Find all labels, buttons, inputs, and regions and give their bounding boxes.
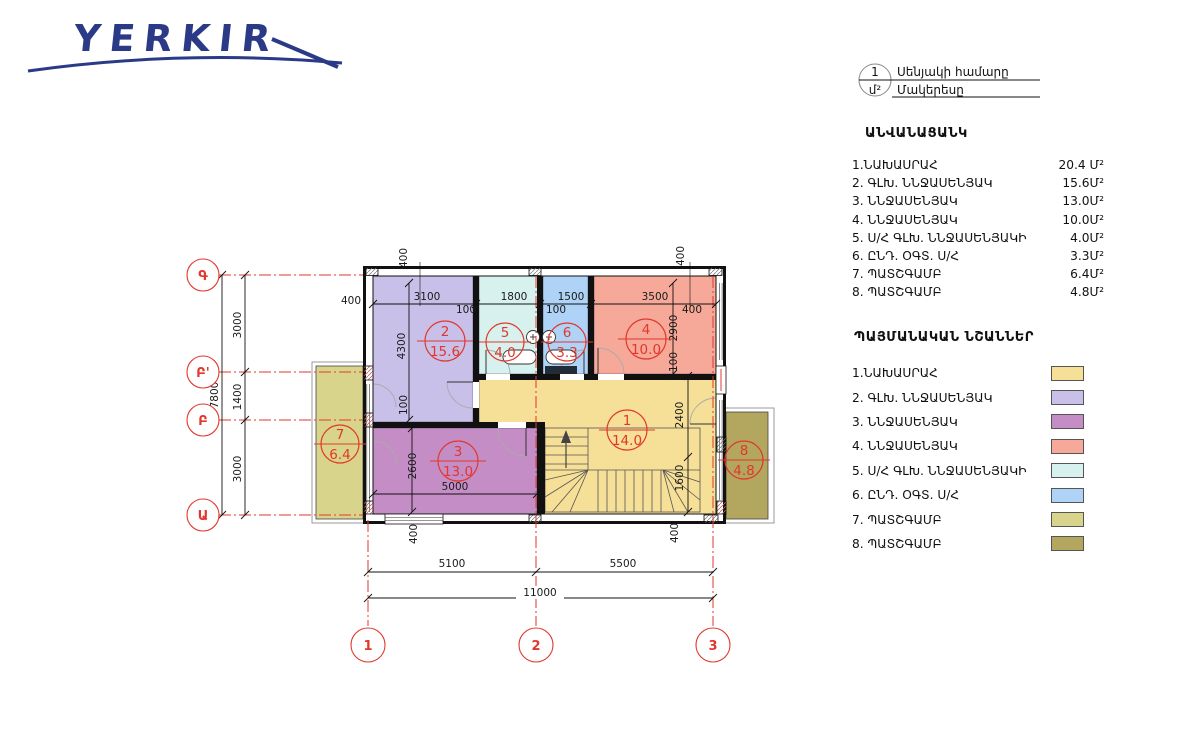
- legend-label: 5. Ս/Հ ԳԼԽ. ՆՆՋԱՍԵՆՅԱԿԻ: [852, 464, 1027, 478]
- room-label: 6. ԸՆԴ. ՕԳՏ. Ս/Հ: [852, 247, 959, 265]
- dim-label: 1800: [501, 291, 528, 303]
- legend-swatch: [1051, 463, 1084, 478]
- room-label: 8. ՊԱՏՇԳԱՄԲ: [852, 283, 942, 301]
- room-area-value: 4.0: [494, 345, 515, 361]
- dim-label: 11000: [523, 587, 556, 599]
- room-number: 5: [501, 325, 510, 341]
- legend-item: 6. ԸՆԴ. ՕԳՏ. Ս/Հ: [852, 483, 1084, 507]
- dim-label: 400: [341, 295, 361, 307]
- dim-label: 5000: [442, 481, 469, 493]
- room-list-item: 6. ԸՆԴ. ՕԳՏ. Ս/Հ 3.3Մ²: [852, 247, 1104, 265]
- legend-item: 7. ՊԱՏՇԳԱՄԲ: [852, 507, 1084, 531]
- legend-swatch: [1051, 439, 1084, 454]
- grid-col-label: 1: [363, 639, 372, 654]
- legend-item: 8. ՊԱՏՇԳԱՄԲ: [852, 532, 1084, 556]
- dim-label: 3500: [642, 291, 669, 303]
- room-label: 7. ՊԱՏՇԳԱՄԲ: [852, 265, 942, 283]
- key-row1-label: Սենյակի համարը: [897, 65, 1009, 79]
- dim-label: 3100: [414, 291, 441, 303]
- dim-label: 3000: [232, 312, 244, 339]
- dim-label: 1400: [232, 384, 244, 411]
- legend-item: 1.ՆԱԽԱՍՐԱՀ: [852, 361, 1084, 385]
- logo-r-leg: [272, 39, 338, 67]
- room-area-value: 10.0: [631, 342, 661, 358]
- room-area-value: 14.0: [612, 433, 642, 449]
- room-label: 4. ՆՆՋԱՍԵՆՅԱԿ: [852, 211, 958, 229]
- room-number: 2: [441, 324, 450, 340]
- dim-label: 1500: [558, 291, 585, 303]
- room-area: 20.4 Մ²: [1058, 156, 1104, 174]
- legend-swatch: [1051, 512, 1084, 527]
- room-number: 3: [454, 444, 463, 460]
- dim-label: 2400: [674, 402, 686, 429]
- legend-label: 3. ՆՆՋԱՍԵՆՅԱԿ: [852, 415, 958, 429]
- legend-label: 7. ՊԱՏՇԳԱՄԲ: [852, 513, 942, 527]
- dim-label: 5100: [439, 558, 466, 570]
- legend-label: 1.ՆԱԽԱՍՐԱՀ: [852, 366, 938, 380]
- legend-label: 2. ԳԼԽ. ՆՆՋԱՍԵՆՅԱԿ: [852, 391, 992, 405]
- room-area: 15.6Մ²: [1062, 174, 1104, 192]
- room-area: 4.0Մ²: [1070, 229, 1104, 247]
- legend-label: 8. ՊԱՏՇԳԱՄԲ: [852, 537, 942, 551]
- legend-swatch: [1051, 390, 1084, 405]
- room-list-item: 3. ՆՆՋԱՍԵՆՅԱԿ 13.0Մ²: [852, 192, 1104, 210]
- room-list-item: 4. ՆՆՋԱՍԵՆՅԱԿ 10.0Մ²: [852, 211, 1104, 229]
- room-number: 1: [623, 413, 632, 429]
- room-area-value: 3.3: [556, 345, 577, 361]
- room-area: 4.8Մ²: [1070, 283, 1104, 301]
- dim-label: 4300: [396, 333, 408, 360]
- legend-label: 6. ԸՆԴ. ՕԳՏ. Ս/Հ: [852, 488, 959, 502]
- yerkir-logo: YERKIR: [20, 5, 350, 77]
- dim-label: 3000: [232, 456, 244, 483]
- room-area-value: 15.6: [430, 344, 460, 360]
- symbol-key: 1 մ² Սենյակի համարը Մակերեսը: [848, 58, 1058, 108]
- room-list-item: 8. ՊԱՏՇԳԱՄԲ 4.8Մ²: [852, 283, 1104, 301]
- room-list-item: 2. ԳԼԽ. ՆՆՋԱՍԵՆՅԱԿ 15.6Մ²: [852, 174, 1104, 192]
- dim-label: 100: [668, 352, 680, 372]
- legend-item: 2. ԳԼԽ. ՆՆՋԱՍԵՆՅԱԿ: [852, 385, 1084, 409]
- dim-label: 400: [682, 304, 702, 316]
- legend-swatch: [1051, 488, 1084, 503]
- dim-label: 5500: [610, 558, 637, 570]
- legend-swatch: [1051, 536, 1084, 551]
- grid-row-label: Բ': [196, 366, 209, 381]
- legend-panel: ՊԱՅՄԱՆԱԿԱՆ ՆՇԱՆՆԵՐ 1.ՆԱԽԱՍՐԱՀ 2. ԳԼԽ. ՆՆ…: [852, 330, 1084, 556]
- dim-label: 100: [398, 395, 410, 415]
- room-area: 13.0Մ²: [1062, 192, 1104, 210]
- room-number: 6: [563, 325, 572, 341]
- room-list-panel: ԱՆՎԱՆԱՑԱՆԿ 1.ՆԱԽԱՍՐԱՀ 20.4 Մ² 2. ԳԼԽ. ՆՆ…: [852, 126, 1104, 302]
- legend-item: 3. ՆՆՋԱՍԵՆՅԱԿ: [852, 410, 1084, 434]
- room-number: 7: [336, 427, 345, 443]
- room-area: 3.3Մ²: [1070, 247, 1104, 265]
- room-area: 10.0Մ²: [1062, 211, 1104, 229]
- legend-title: ՊԱՅՄԱՆԱԿԱՆ ՆՇԱՆՆԵՐ: [854, 330, 1084, 345]
- room-label: 5. Ս/Հ ԳԼԽ. ՆՆՋԱՍԵՆՅԱԿԻ: [852, 229, 1027, 247]
- room-list-title: ԱՆՎԱՆԱՑԱՆԿ: [865, 126, 1104, 141]
- legend-item: 4. ՆՆՋԱՍԵՆՅԱԿ: [852, 434, 1084, 458]
- legend-swatch: [1051, 366, 1084, 381]
- dim-label: 2900: [668, 315, 680, 342]
- grid-col-label: 2: [531, 639, 540, 654]
- legend-swatch: [1051, 414, 1084, 429]
- room-area-value: 6.4: [329, 447, 350, 463]
- room-list-item: 5. Ս/Հ ԳԼԽ. ՆՆՋԱՍԵՆՅԱԿԻ 4.0Մ²: [852, 229, 1104, 247]
- room-list-item: 1.ՆԱԽԱՍՐԱՀ 20.4 Մ²: [852, 156, 1104, 174]
- grid-row-label: Գ: [198, 269, 208, 284]
- room-list-item: 7. ՊԱՏՇԳԱՄԲ 6.4Մ²: [852, 265, 1104, 283]
- room-area-value: 13.0: [443, 464, 473, 480]
- dim-label: 400: [675, 246, 687, 266]
- dim-label: 400: [669, 523, 681, 543]
- grid-row-label: Ա: [198, 509, 209, 524]
- logo-text: YERKIR: [70, 17, 281, 60]
- room-area-value: 4.8: [733, 463, 754, 479]
- floor-plan: 3100 1800 1500 3500 100 100 400 400 5000…: [180, 230, 792, 670]
- dim-label: 100: [456, 304, 476, 316]
- legend-item: 5. Ս/Հ ԳԼԽ. ՆՆՋԱՍԵՆՅԱԿԻ: [852, 459, 1084, 483]
- room-label: 3. ՆՆՋԱՍԵՆՅԱԿ: [852, 192, 958, 210]
- grid-row-label: Բ: [198, 414, 207, 429]
- dim-label: 400: [408, 524, 420, 544]
- dim-label: 400: [398, 248, 410, 268]
- room-label: 1.ՆԱԽԱՍՐԱՀ: [852, 156, 938, 174]
- room-number: 8: [740, 443, 749, 459]
- dim-label: 2600: [407, 453, 419, 480]
- grid-col-label: 3: [708, 639, 717, 654]
- dim-label: 1600: [674, 465, 686, 492]
- room-label: 2. ԳԼԽ. ՆՆՋԱՍԵՆՅԱԿ: [852, 174, 992, 192]
- key-room-number: 1: [871, 65, 879, 79]
- room-number: 4: [642, 322, 651, 338]
- window: [385, 514, 443, 524]
- room-area: 6.4Մ²: [1070, 265, 1104, 283]
- key-unit: մ²: [869, 83, 882, 97]
- dim-label: 100: [546, 304, 566, 316]
- counter-icon: [545, 366, 577, 374]
- legend-label: 4. ՆՆՋԱՍԵՆՅԱԿ: [852, 439, 958, 453]
- key-row2-label: Մակերեսը: [897, 83, 964, 97]
